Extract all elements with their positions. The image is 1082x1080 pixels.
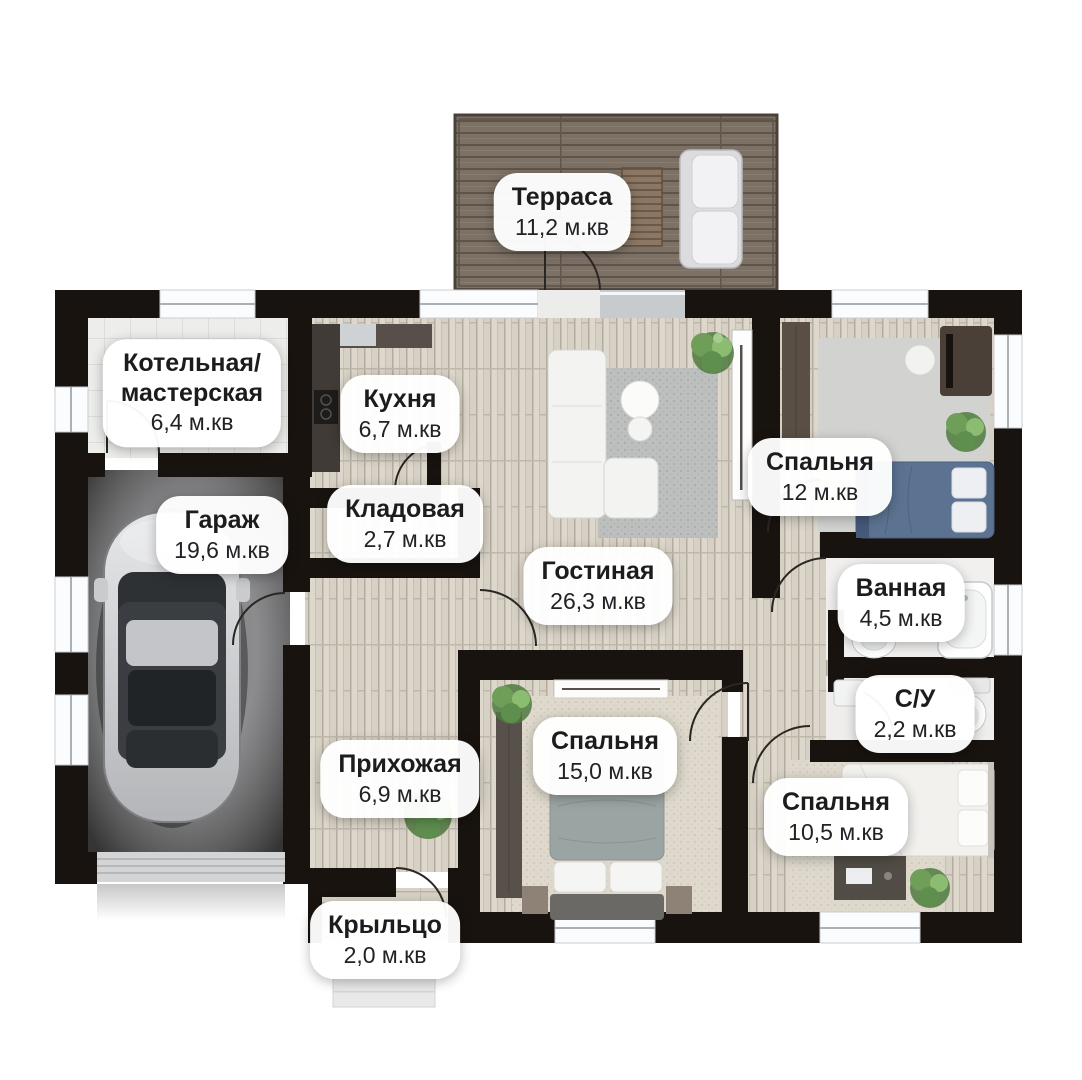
room-area: 11,2 м.кв bbox=[515, 213, 609, 241]
room-label-bedroom2: Спальня 15,0 м.кв bbox=[533, 717, 677, 795]
nightstand bbox=[522, 886, 548, 914]
room-label-bedroom3: Спальня 10,5 м.кв bbox=[764, 778, 908, 856]
terrace-sofa bbox=[680, 150, 742, 268]
room-label-bathroom: Ванная 4,5 м.кв bbox=[838, 564, 965, 642]
sofa bbox=[548, 350, 606, 518]
room-area: 12 м.кв bbox=[782, 478, 858, 506]
room-area: 2,0 м.кв bbox=[344, 941, 427, 969]
room-label-hallway: Прихожая 6,9 м.кв bbox=[320, 740, 479, 818]
window bbox=[55, 577, 88, 652]
room-area: 26,3 м.кв bbox=[550, 587, 646, 615]
terrace-door-opening bbox=[538, 290, 600, 318]
plant bbox=[910, 868, 950, 908]
room-name: Спальня bbox=[782, 788, 890, 818]
window bbox=[994, 335, 1022, 428]
room-name: С/У bbox=[895, 685, 936, 715]
plant bbox=[946, 412, 986, 452]
room-area: 6,9 м.кв bbox=[359, 780, 442, 808]
monitor bbox=[946, 334, 953, 388]
room-name: Крыльцо bbox=[328, 911, 442, 941]
window bbox=[160, 290, 255, 318]
room-name: Спальня bbox=[551, 727, 659, 757]
room-label-living: Гостиная 26,3 м.кв bbox=[524, 547, 673, 625]
room-name: Гостиная bbox=[542, 557, 655, 587]
terrace-glazing bbox=[600, 290, 685, 318]
window bbox=[994, 585, 1022, 655]
room-area: 6,7 м.кв bbox=[359, 415, 442, 443]
window bbox=[55, 387, 88, 432]
floor-plan-canvas: Терраса 11,2 м.кв Котельная/ мастерская … bbox=[0, 0, 1082, 1080]
room-area: 10,5 м.кв bbox=[788, 818, 884, 846]
room-name: Гараж bbox=[185, 506, 260, 536]
room-label-boiler: Котельная/ мастерская 6,4 м.кв bbox=[103, 339, 281, 447]
room-name: Кладовая bbox=[345, 495, 465, 525]
room-area: 2,2 м.кв bbox=[874, 715, 957, 743]
room-label-wc: С/У 2,2 м.кв bbox=[856, 675, 975, 753]
room-area: 15,0 м.кв bbox=[557, 757, 653, 785]
room-label-terrace: Терраса 11,2 м.кв bbox=[494, 173, 631, 251]
room-label-bedroom1: Спальня 12 м.кв bbox=[748, 438, 892, 516]
room-label-storage: Кладовая 2,7 м.кв bbox=[327, 485, 483, 563]
room-area: 19,6 м.кв bbox=[174, 536, 270, 564]
room-name: Спальня bbox=[766, 448, 874, 478]
room-name: Терраса bbox=[512, 183, 613, 213]
window bbox=[832, 290, 928, 318]
plant bbox=[492, 684, 532, 724]
chair bbox=[905, 345, 935, 375]
room-name: Прихожая bbox=[338, 750, 461, 780]
room-label-garage: Гараж 19,6 м.кв bbox=[156, 496, 288, 574]
room-name: Кухня bbox=[363, 385, 436, 415]
window bbox=[420, 290, 538, 318]
window bbox=[820, 912, 920, 943]
garage-door bbox=[97, 852, 285, 882]
room-label-porch: Крыльцо 2,0 м.кв bbox=[310, 901, 460, 979]
nightstand bbox=[666, 886, 692, 914]
window bbox=[55, 695, 88, 765]
room-name: Котельная/ мастерская bbox=[121, 349, 263, 408]
room-area: 6,4 м.кв bbox=[151, 409, 234, 437]
room-area: 2,7 м.кв bbox=[364, 525, 447, 553]
room-name: Ванная bbox=[856, 574, 947, 604]
room-label-kitchen: Кухня 6,7 м.кв bbox=[341, 375, 460, 453]
coffee-table bbox=[621, 381, 659, 419]
driveway-shadow bbox=[97, 884, 285, 920]
room-area: 4,5 м.кв bbox=[860, 604, 943, 632]
